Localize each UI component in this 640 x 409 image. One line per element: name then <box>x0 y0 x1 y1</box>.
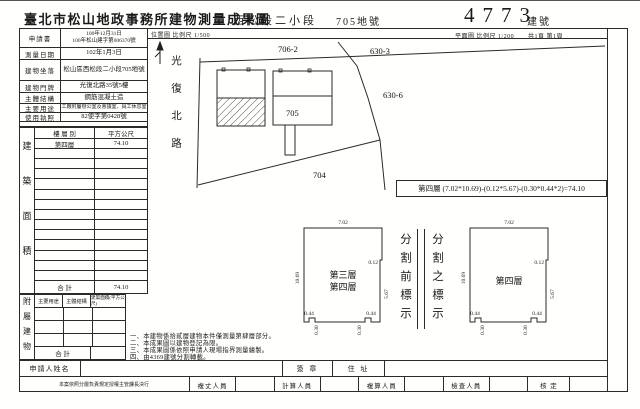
dim-notch-w-left: 0.44 <box>304 311 314 317</box>
empty-floor-row <box>35 261 147 271</box>
approval-label: 核 定 <box>528 377 570 392</box>
column-header-area: 平方公尺 <box>95 128 147 138</box>
south-parcel-boundary <box>198 140 380 185</box>
seal-label: 簽 章 <box>283 361 333 376</box>
parcel-number: 705地號 <box>336 13 381 28</box>
empty-floor-row <box>35 220 147 230</box>
empty-floor-row <box>35 190 147 200</box>
floor-area-side-label: 建築面積 <box>20 128 35 293</box>
inspector-label: 檢查人員 <box>444 377 490 392</box>
dim-notch-w-left: 0.44 <box>470 311 480 317</box>
floor-label-3f: 第三層 <box>329 269 356 280</box>
annex-col-area: 建築面積(平方公尺) <box>91 295 125 307</box>
inspector-field <box>490 377 529 392</box>
dim-left: 10.69 <box>295 272 301 285</box>
floor-row: 第四層 74.10 <box>35 139 147 149</box>
north-parcel-boundary <box>200 46 605 62</box>
row-label: 建物門牌 <box>20 81 61 92</box>
applicant-name-field <box>81 361 283 376</box>
dim-step: 0.12 <box>534 260 544 266</box>
floor-area-value: 74.10 <box>95 139 147 148</box>
empty-annex-row <box>35 334 125 347</box>
table-row: 建物門牌 光復北路35號5樓 <box>20 81 147 93</box>
row-label: 使用執照 <box>20 113 61 121</box>
dim-notch-w-right: 0.44 <box>366 311 376 317</box>
dim-step: 0.12 <box>368 260 378 266</box>
total-area-value: 74.10 <box>95 281 147 293</box>
dim-top: 7.02 <box>338 220 348 226</box>
surveyor-label: 複丈人員 <box>190 377 236 392</box>
staff-row: 本案依照分層負責規定授權主管課長決行 複丈人員 計算人員 複算人員 檢查人員 核… <box>19 376 608 392</box>
address-label: 住 址 <box>333 361 385 376</box>
floor-table-header: 樓 層 別 平方公尺 <box>35 128 147 139</box>
surveyor-field <box>236 377 275 392</box>
subject-building-hatched <box>217 98 265 126</box>
total-label: 合 計 <box>35 281 95 293</box>
floor-total-row: 合 計 74.10 <box>35 281 147 293</box>
building-location: 松山區西松段二小段705地號 <box>61 60 147 80</box>
empty-floor-row <box>35 169 147 179</box>
empty-floor-row <box>35 210 147 220</box>
empty-floor-row <box>35 230 147 240</box>
annex-total-row: 合 計 <box>35 347 125 359</box>
empty-floor-row <box>35 251 147 261</box>
row-label: 申請書 <box>20 29 61 47</box>
empty-floor-row <box>35 159 147 169</box>
row-label: 主體結構 <box>20 93 61 103</box>
row-value: 100年12月31日 100年松山建字第006370號 <box>61 29 147 47</box>
parcel-label-704: 704 <box>313 170 327 180</box>
building-info-table: 申請書 100年12月31日 100年松山建字第006370號 測量日期 102… <box>19 28 148 127</box>
calculator-label: 計算人員 <box>275 377 321 392</box>
address-field <box>385 361 608 376</box>
row-label: 主要用途 <box>20 104 61 112</box>
table-row: 申請書 100年12月31日 100年松山建字第006370號 <box>20 29 147 48</box>
table-row: 主要用途 工廠附屬辦公室及會議室、員工休息室 <box>20 104 147 113</box>
main-use: 工廠附屬辦公室及會議室、員工休息室 <box>61 104 147 112</box>
row-label: 建物坐落 <box>20 60 61 80</box>
dim-right: 5.67 <box>384 289 390 299</box>
use-permit: 82使字第0428號 <box>61 113 147 121</box>
recalculator-field <box>405 377 444 392</box>
floor-name: 第四層 <box>35 139 95 148</box>
notes-block: 一、本建物係拾貳層建物本件僅測量第肆層部分。 二、本成果圖以建物登記為限。 三、… <box>130 333 355 361</box>
parcel-label-630-6: 630-6 <box>383 90 403 100</box>
empty-floor-row <box>35 200 147 210</box>
empty-floor-row <box>35 149 147 159</box>
building-stub-extension <box>285 125 295 155</box>
calculator-field <box>321 377 360 392</box>
floor-plan-after-division: 7.02 10.69 0.12 5.67 0.44 0.30 0.44 0.30… <box>458 212 558 340</box>
floor-label-4f: 第四層 <box>495 275 522 286</box>
east-building-outline <box>273 71 332 125</box>
annex-total-value <box>91 347 125 359</box>
note-line: 一、本建物係拾貳層建物本件僅測量第肆層部分。 <box>130 333 355 340</box>
survey-date: 102年1月3日 <box>61 48 147 59</box>
empty-annex-row <box>35 308 125 321</box>
table-row: 測量日期 102年1月3日 <box>20 48 147 60</box>
annex-building-table: 附屬建物 主要用途 主體結構 建築面積(平方公尺) 合 計 <box>19 294 126 360</box>
dim-notch-d-right: 0.30 <box>523 325 529 335</box>
floor-label-4f: 第四層 <box>329 281 356 292</box>
note-line: 三、本成果圖係依照申請人現場指界測量繪製。 <box>130 347 355 354</box>
table-row: 使用執照 82使字第0428號 <box>20 113 147 122</box>
dim-top: 7.02 <box>504 220 514 226</box>
table-row: 主體結構 鋼筋混凝土造 <box>20 93 147 104</box>
recalculator-label: 複算人員 <box>359 377 405 392</box>
annex-header-row: 主要用途 主體結構 建築面積(平方公尺) <box>35 295 125 308</box>
annex-col-structure: 主體結構 <box>63 295 91 307</box>
parcel-label-630-3: 630-3 <box>370 46 390 56</box>
applicant-row: 申請人姓名 簽 章 住 址 <box>19 360 608 376</box>
divider-line-1 <box>417 229 418 329</box>
road-edge-line <box>197 58 200 188</box>
annex-total-label: 合 計 <box>35 347 91 359</box>
dim-notch-w-right: 0.44 <box>532 311 542 317</box>
site-plan-map: 706-2 630-3 630-6 705 704 <box>148 38 608 200</box>
floor-plan-before-division: 7.02 10.69 0.12 5.67 0.44 0.30 0.44 0.30… <box>292 212 392 340</box>
empty-floor-row <box>35 179 147 189</box>
main-structure: 鋼筋混凝土造 <box>61 93 147 103</box>
empty-annex-row <box>35 321 125 334</box>
divider-after-label: 分割之標示 <box>429 233 445 326</box>
divider-before-label: 分割前標示 <box>397 233 413 326</box>
row-label: 測量日期 <box>20 48 61 59</box>
divider-line-2 <box>424 229 425 329</box>
land-section: 西松段二小段 <box>233 12 317 28</box>
dim-right: 5.67 <box>550 289 556 299</box>
area-calculation-formula: 第四層 (7.02*10.69)-(0.12*5.67)-(0.30*0.44*… <box>396 180 607 197</box>
spacer-row <box>20 122 147 126</box>
dim-notch-d-left: 0.30 <box>480 325 486 335</box>
survey-document-page: 臺北市松山地政事務所建物測量成果圖 西松段二小段 705地號 4773 建號 位… <box>0 0 640 409</box>
dim-left: 10.69 <box>461 272 467 285</box>
annex-col-use: 主要用途 <box>35 295 63 307</box>
north-arrow-icon <box>155 42 163 64</box>
application-number: 100年松山建字第006370號 <box>72 38 135 45</box>
annex-side-label: 附屬建物 <box>20 295 35 359</box>
road-name-label: 光復北路 <box>168 55 183 165</box>
empty-floor-row <box>35 240 147 250</box>
delegation-note: 本案依照分層負責規定授權主管課長決行 <box>19 377 190 392</box>
dim-notch-d-right: 0.30 <box>357 325 363 335</box>
applicant-name-label: 申請人姓名 <box>19 361 81 376</box>
east-parcel-boundary <box>338 42 385 190</box>
floor-outline <box>470 228 548 322</box>
column-header-floor: 樓 層 別 <box>35 128 95 138</box>
building-address: 光復北路35號5樓 <box>61 81 147 92</box>
empty-floor-row <box>35 271 147 281</box>
note-line: 二、本成果圖以建物登記為限。 <box>130 340 355 347</box>
parcel-label-705: 705 <box>286 108 299 118</box>
parcel-label-706-2: 706-2 <box>278 44 298 54</box>
table-row: 建物坐落 松山區西松段二小段705地號 <box>20 60 147 81</box>
building-number-label: 建號 <box>527 13 551 28</box>
application-date: 100年12月31日 <box>86 31 122 38</box>
floor-area-table: 建築面積 樓 層 別 平方公尺 第四層 74.10 <box>19 127 148 294</box>
approval-field <box>570 377 608 392</box>
